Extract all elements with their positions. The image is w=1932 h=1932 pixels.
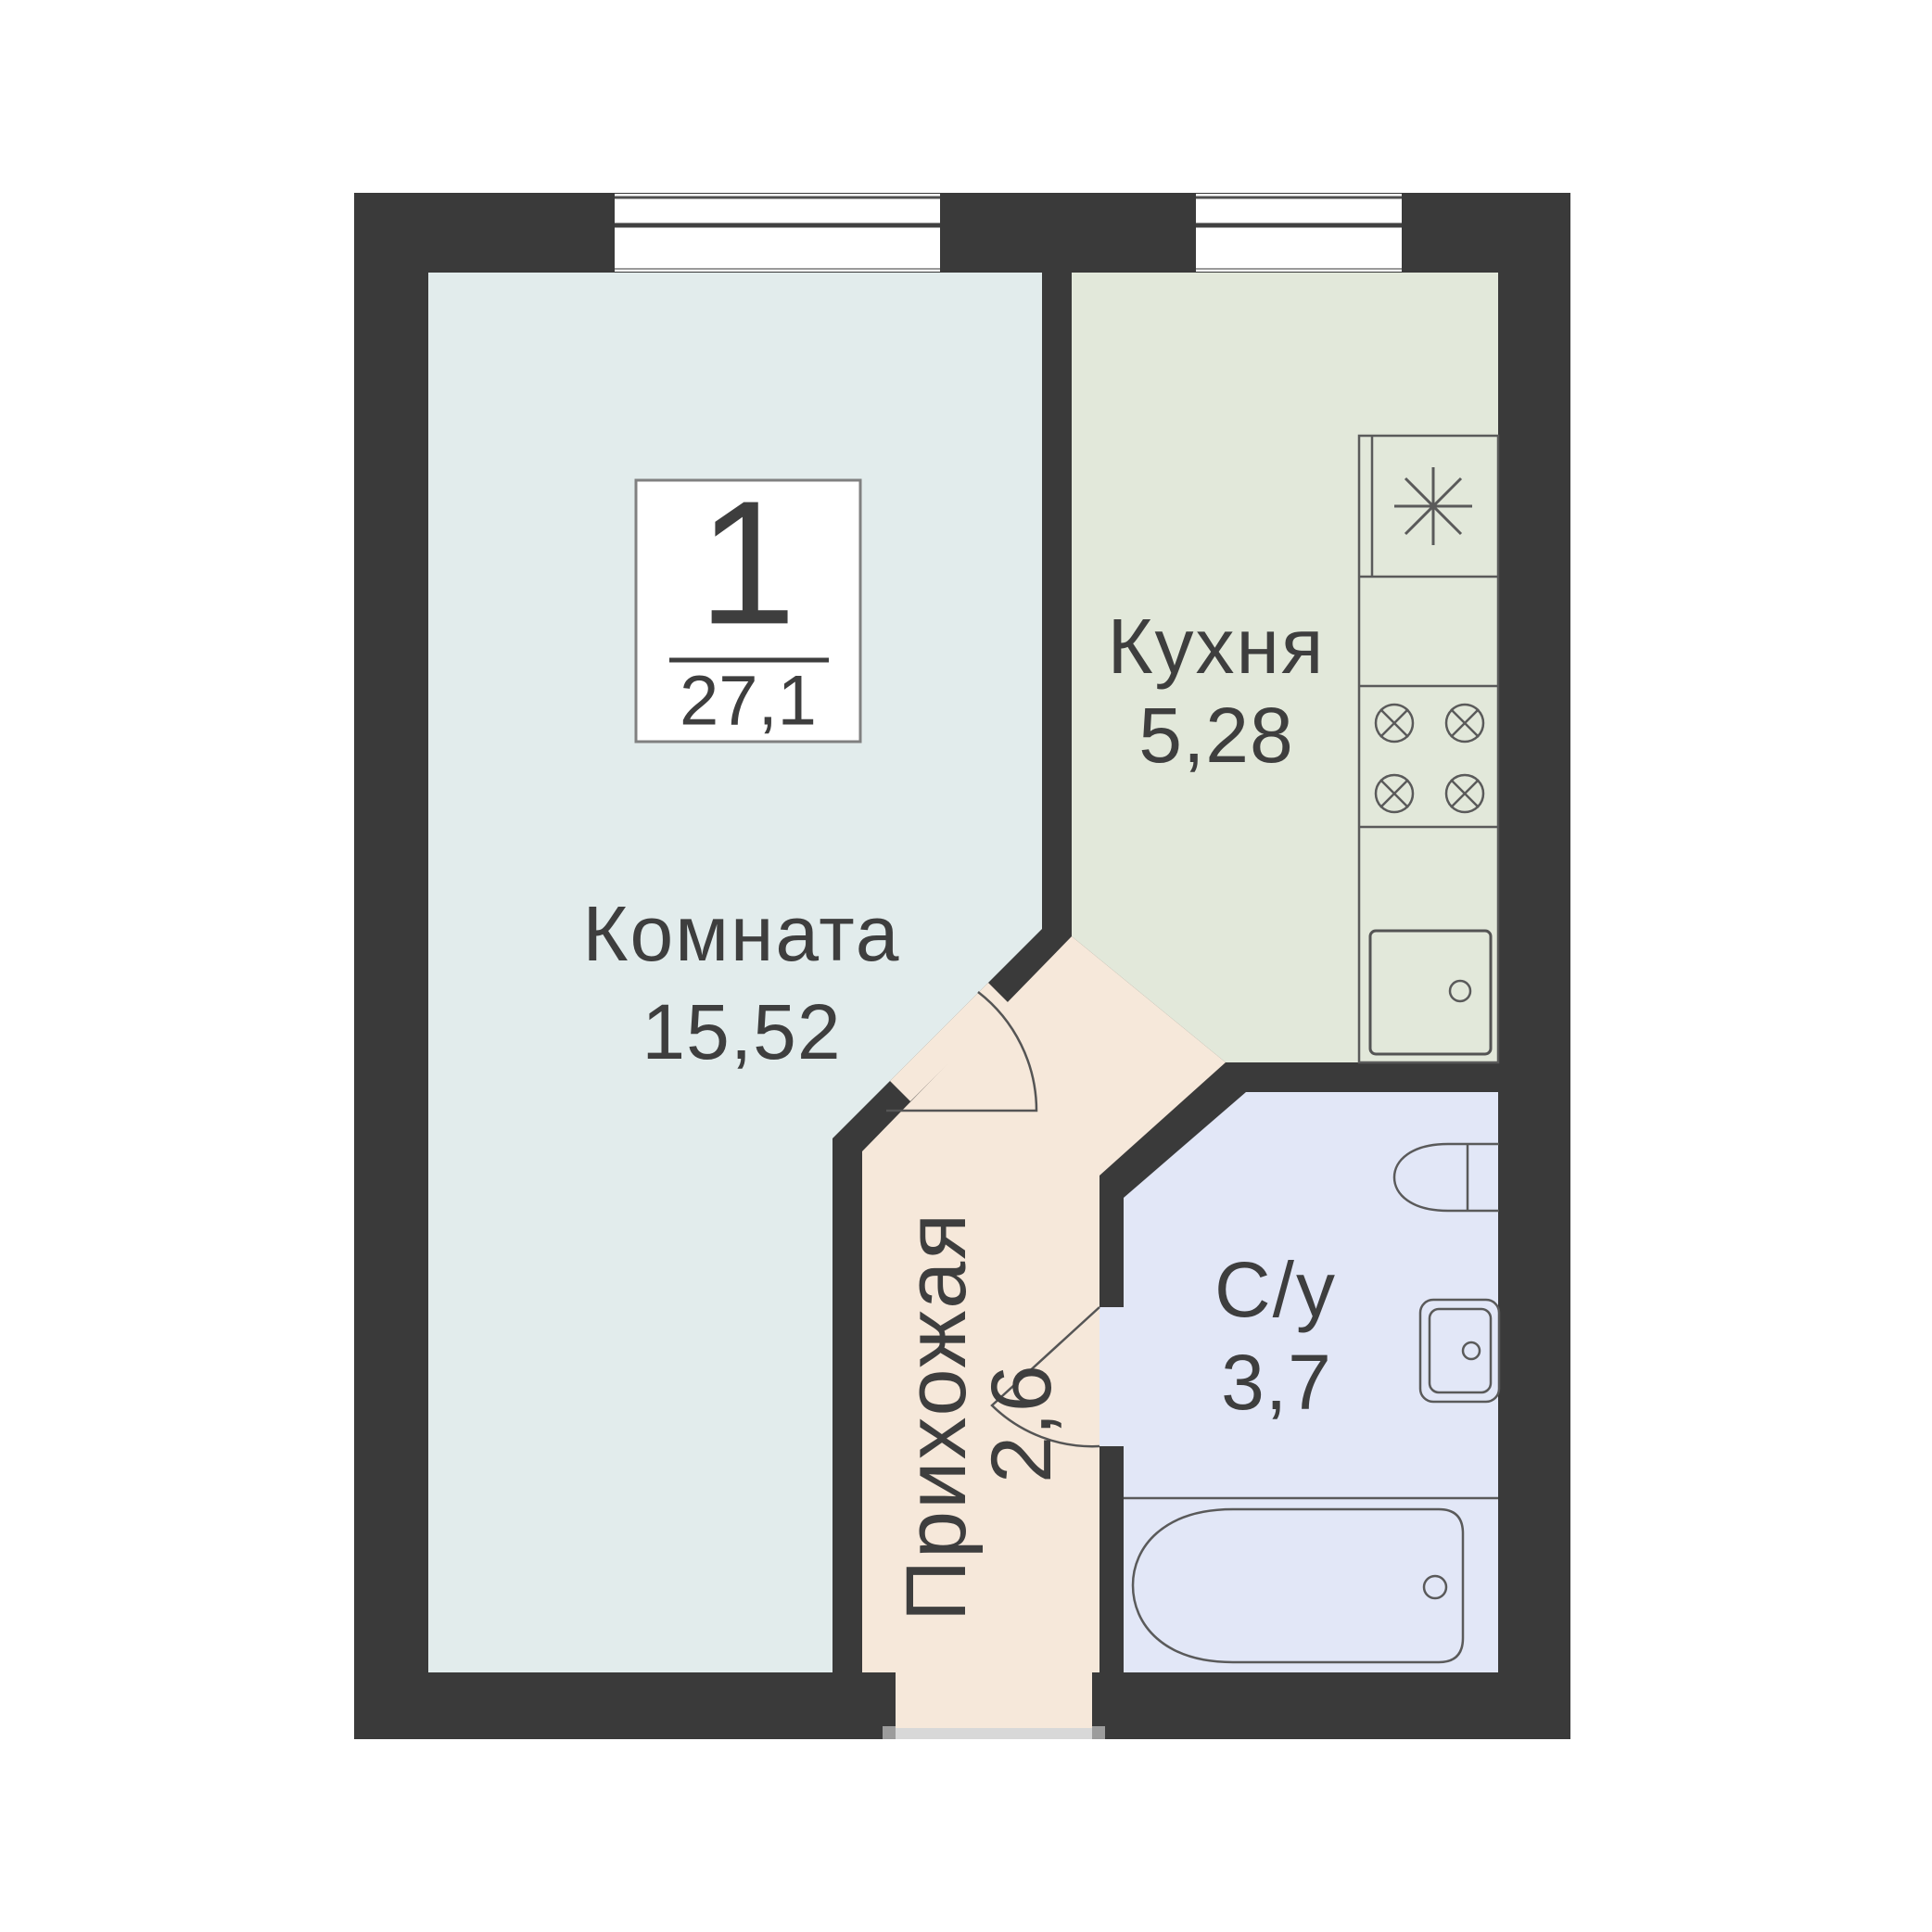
floorplan-page: 1 27,1 Комната 15,52 Кухня 5,28 Прихожая… — [0, 0, 1932, 1932]
floorplan-svg: 1 27,1 Комната 15,52 Кухня 5,28 Прихожая… — [0, 0, 1932, 1932]
window-icon — [615, 194, 940, 272]
window-icon — [1196, 194, 1402, 272]
bathroom-area: 3,7 — [1221, 1339, 1332, 1426]
badge-rooms-count: 1 — [698, 464, 796, 661]
bathroom-label: С/у — [1214, 1246, 1337, 1333]
hallway-label: Прихожая — [889, 1212, 984, 1621]
entrance-threshold — [883, 1726, 1105, 1739]
entrance-opening — [896, 1672, 1092, 1730]
kitchen-label: Кухня — [1108, 603, 1326, 690]
hallway-area: 2,6 — [974, 1365, 1069, 1483]
room-area: 15,52 — [642, 988, 841, 1075]
badge-total-area: 27,1 — [680, 661, 817, 740]
room-label: Комната — [583, 890, 901, 977]
area-badge: 1 27,1 — [636, 464, 860, 742]
bathroom-door-opening — [1099, 1307, 1124, 1446]
boiler-asterisk-icon — [1394, 467, 1472, 545]
kitchen-area: 5,28 — [1138, 692, 1294, 779]
